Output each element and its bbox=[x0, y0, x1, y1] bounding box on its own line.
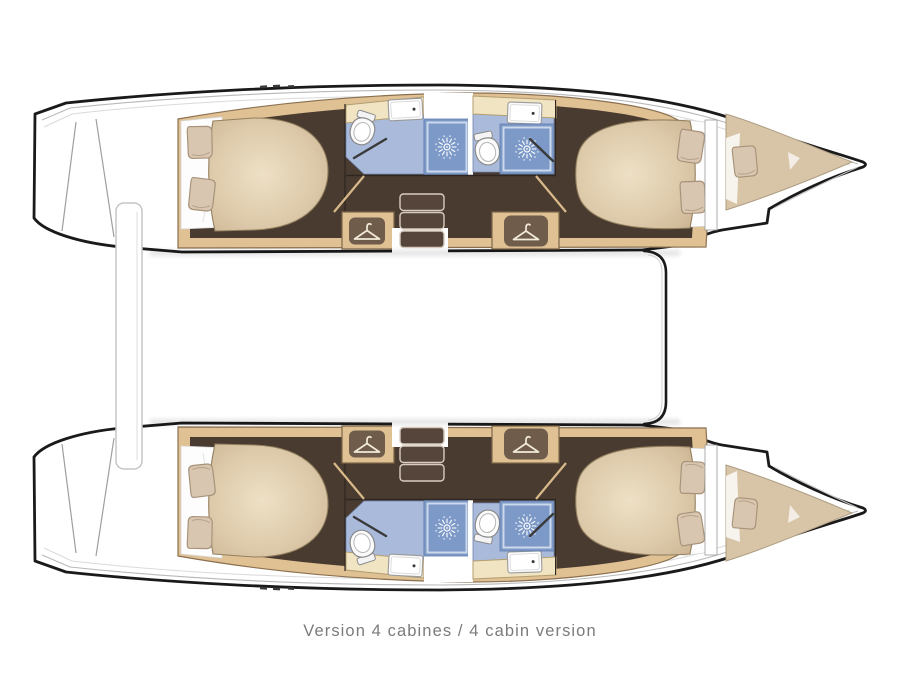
bottom-hull bbox=[34, 419, 866, 590]
floorplan-page: Version 4 cabines / 4 cabin version bbox=[0, 0, 900, 675]
forward-crossbeam-line bbox=[644, 251, 666, 424]
floorplan-svg bbox=[0, 0, 900, 675]
caption: Version 4 cabines / 4 cabin version bbox=[0, 622, 900, 641]
aft-gangway-bar bbox=[116, 203, 142, 469]
top-hull bbox=[34, 85, 866, 256]
